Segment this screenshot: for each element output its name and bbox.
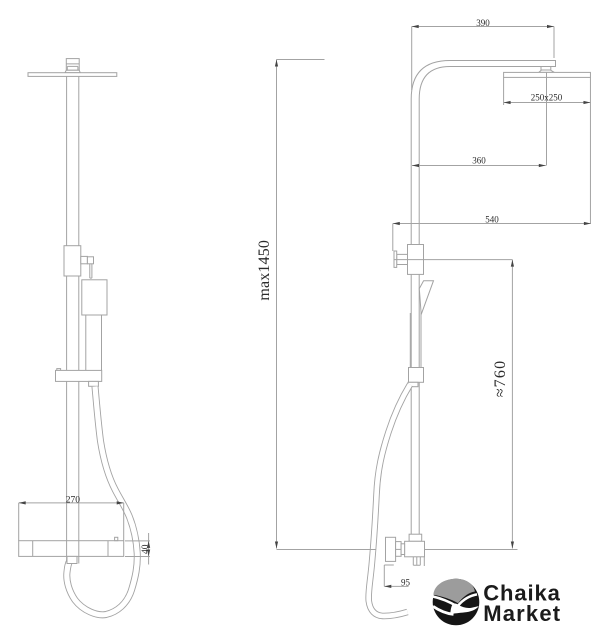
svg-text:250x250: 250x250 [531, 92, 563, 102]
svg-text:≈760: ≈760 [492, 360, 509, 398]
svg-text:270: 270 [66, 495, 81, 505]
svg-text:40: 40 [141, 544, 151, 554]
svg-text:95: 95 [401, 577, 411, 587]
svg-text:Market: Market [483, 601, 561, 626]
svg-text:360: 360 [472, 156, 486, 166]
svg-text:540: 540 [485, 215, 499, 225]
svg-text:max1450: max1450 [256, 240, 273, 301]
svg-text:390: 390 [476, 18, 490, 28]
